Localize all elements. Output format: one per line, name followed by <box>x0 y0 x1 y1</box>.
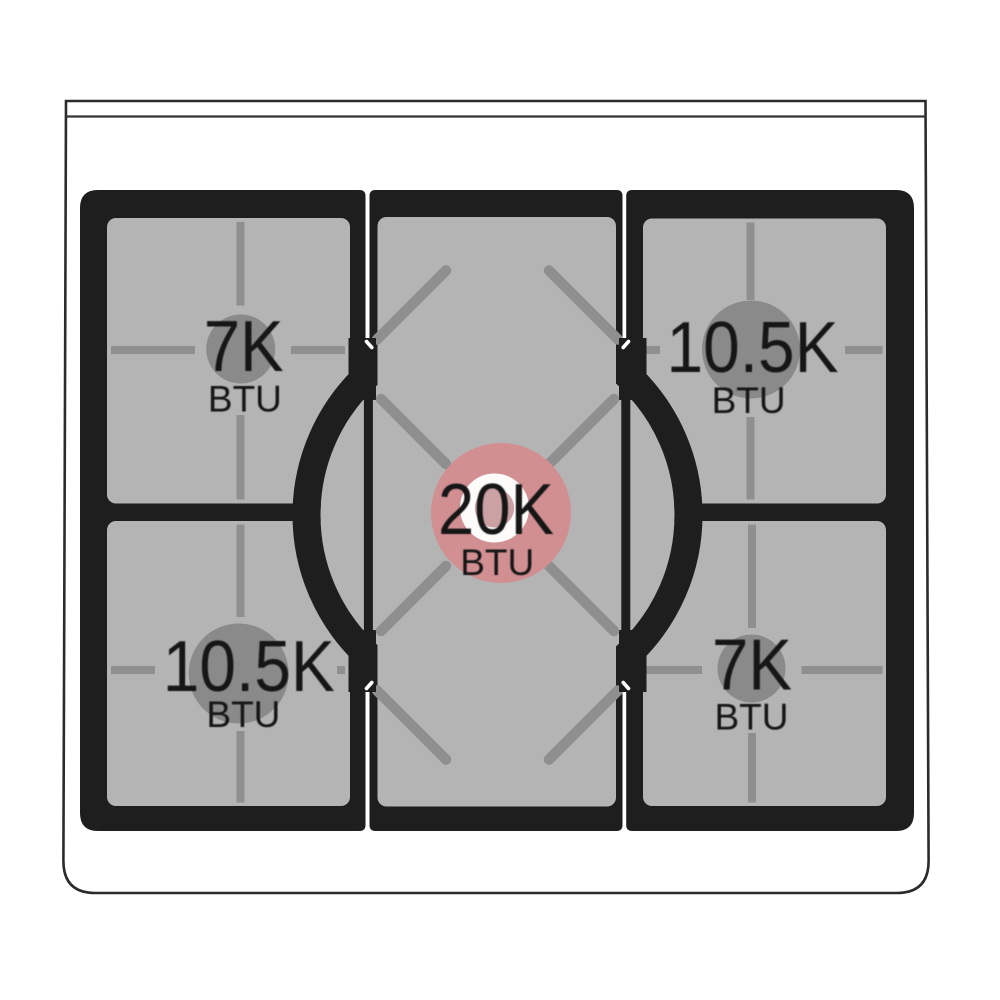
svg-text:BTU: BTU <box>712 380 786 421</box>
svg-text:BTU: BTU <box>208 379 282 420</box>
svg-text:BTU: BTU <box>715 697 789 738</box>
svg-text:7K: 7K <box>712 626 792 706</box>
svg-text:7K: 7K <box>204 307 284 387</box>
svg-text:BTU: BTU <box>460 542 534 583</box>
svg-text:20K: 20K <box>438 470 554 550</box>
svg-text:10.5K: 10.5K <box>667 308 839 388</box>
svg-text:BTU: BTU <box>206 694 280 735</box>
